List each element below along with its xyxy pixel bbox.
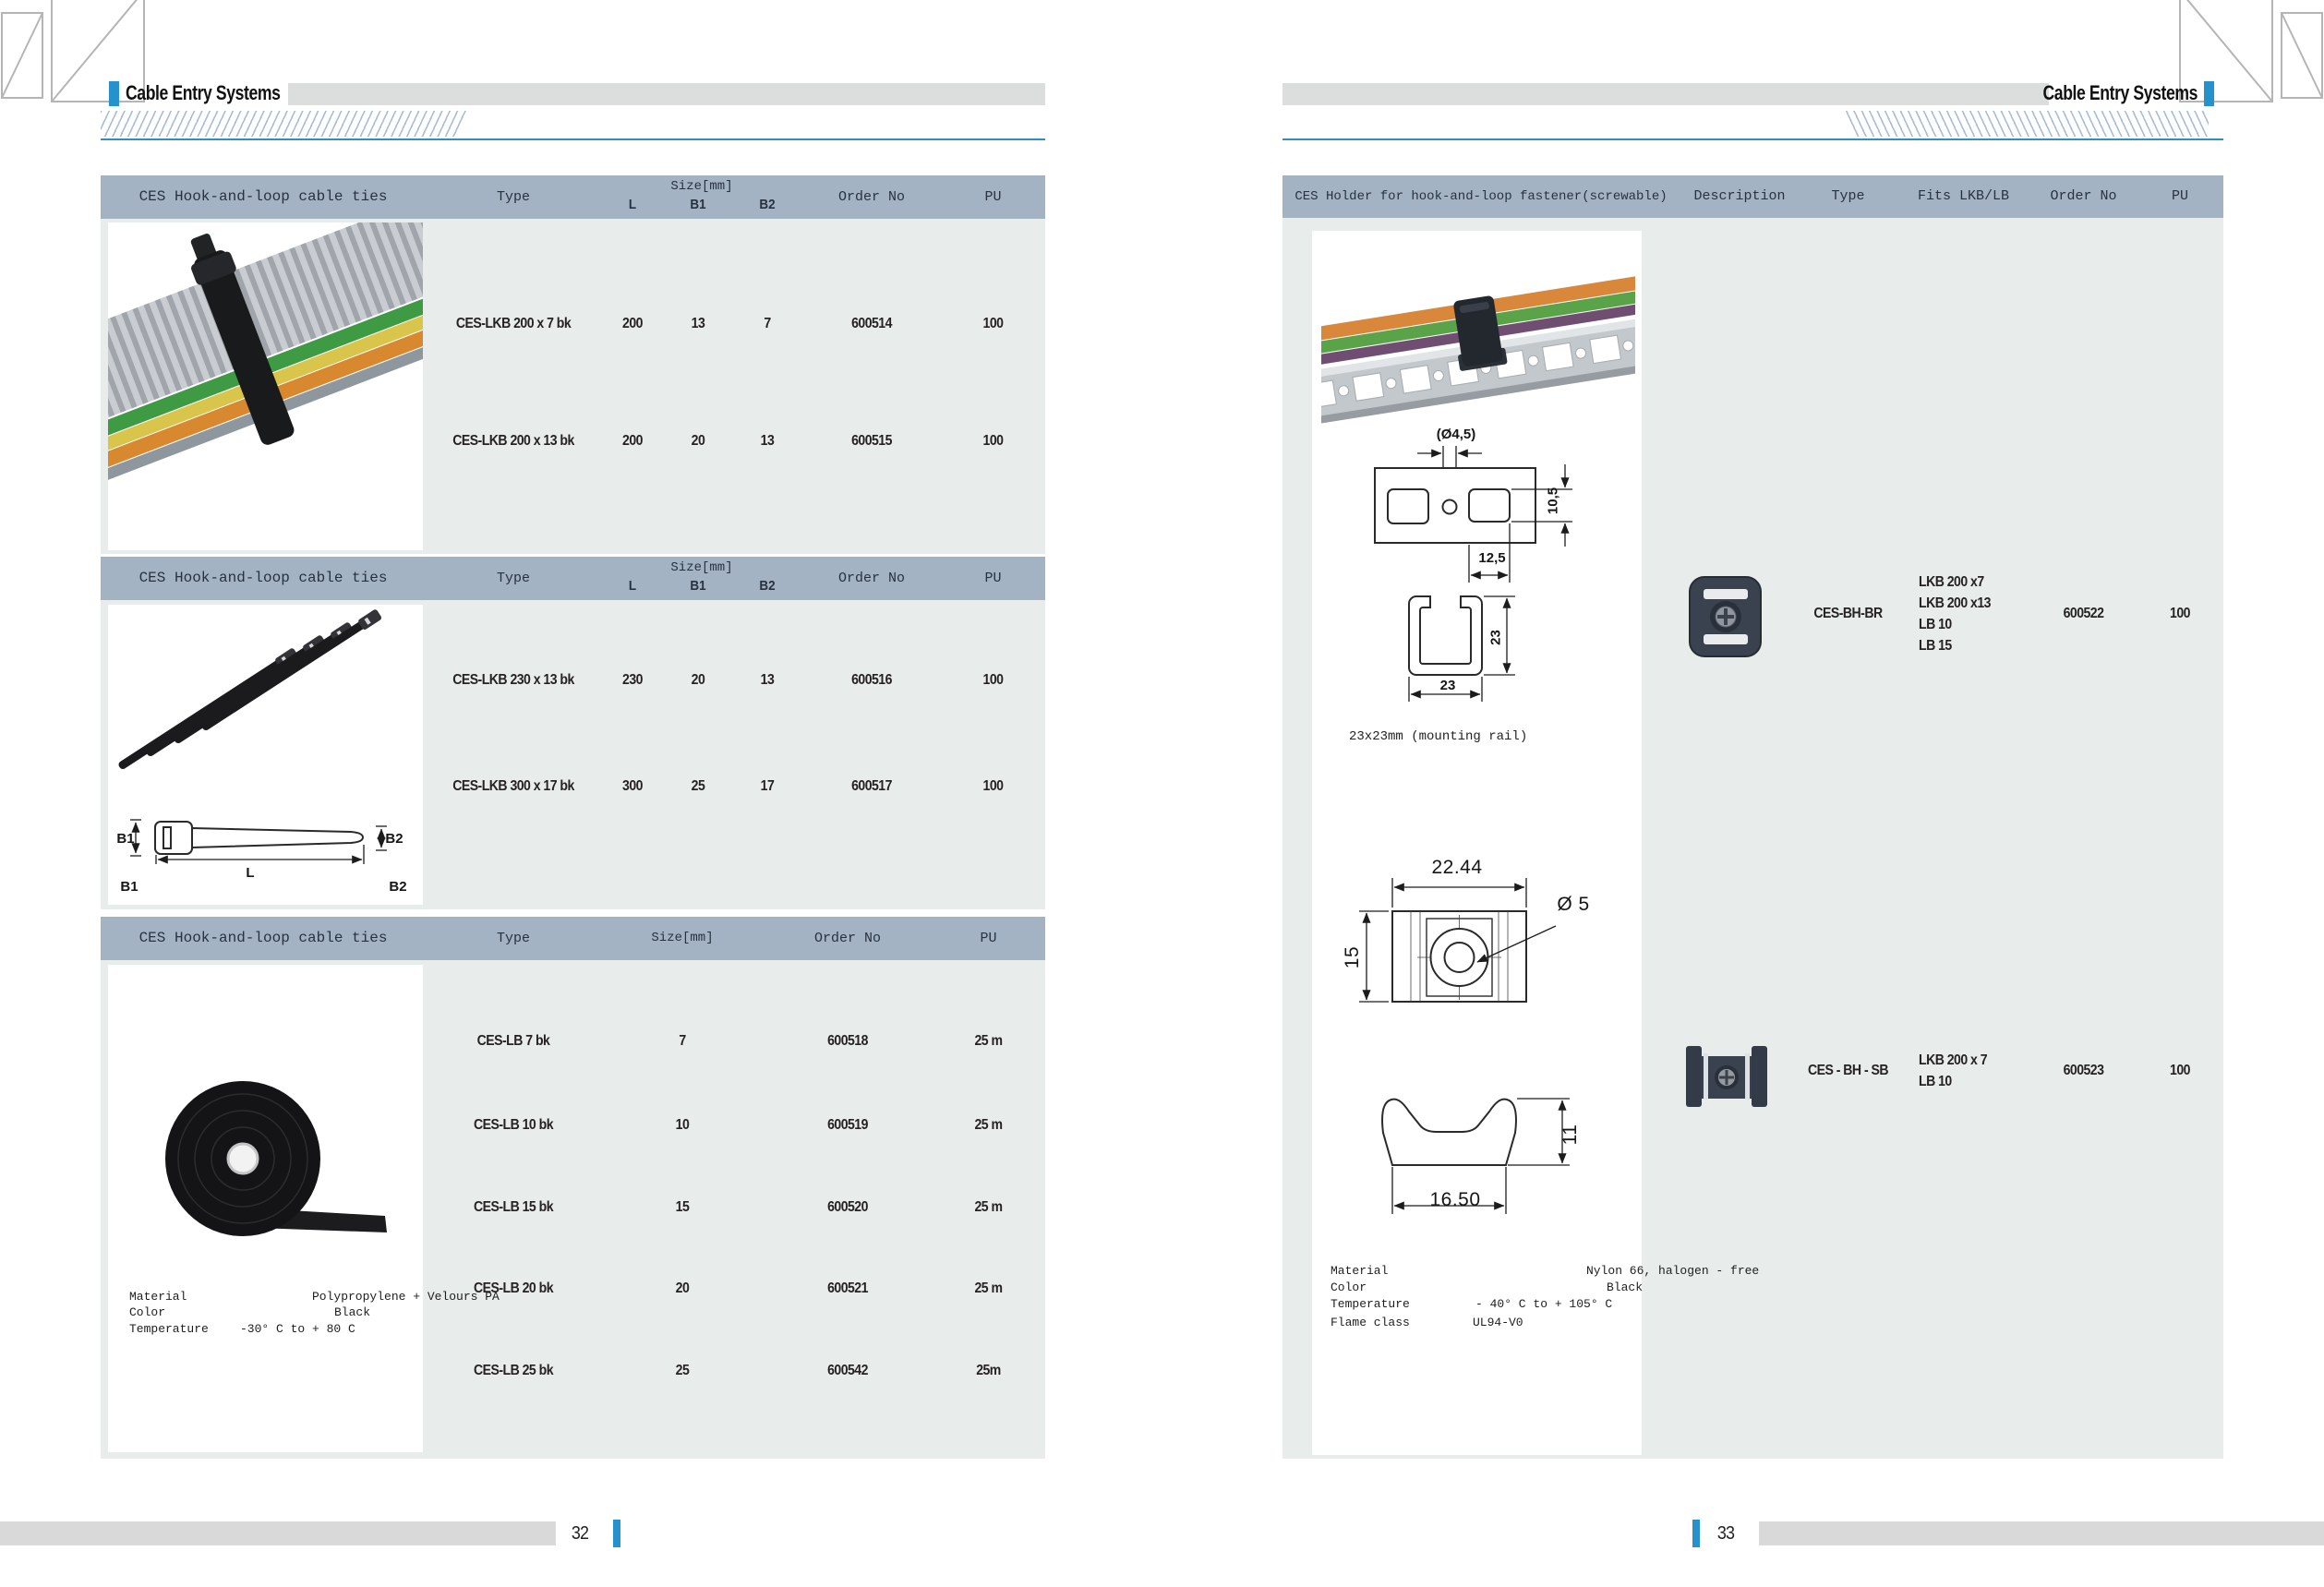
row-size: 15	[611, 1196, 754, 1219]
page-number-right: 33	[1707, 1523, 1744, 1545]
col-header-pu: PU	[2137, 175, 2223, 218]
row-l: 230	[605, 669, 660, 691]
row-type: CES-BH-BR	[1805, 603, 1890, 625]
row-pu: 100	[2142, 1060, 2219, 1082]
row-order: 600542	[774, 1360, 921, 1382]
material-label: Material	[1331, 1263, 1388, 1280]
table-row: CES-LKB 200 x 7 bk 200 13 7 600514 100	[101, 313, 1045, 335]
fits-item: LB 15	[1919, 635, 2032, 656]
row-type: CES-LKB 230 x 13 bk	[436, 669, 590, 691]
row-type: CES-LB 7 bk	[436, 1030, 590, 1052]
col-header-pu: PU	[941, 175, 1045, 219]
product-photo-frame	[108, 222, 423, 550]
temperature-value: -30° C to + 80 C	[240, 1321, 355, 1338]
row-l: 200	[605, 313, 660, 335]
table-body: B1 B2 L B1 B2 L CES-LKB 230 x 13 bk 230 …	[101, 600, 1045, 909]
row-order: 600522	[2037, 603, 2130, 625]
photo-rail-with-cables	[1321, 263, 1635, 425]
dim-label-b1: B1	[113, 831, 138, 847]
row-order: 600519	[774, 1114, 921, 1136]
row-pu: 100	[947, 313, 1039, 335]
dim-holder-hole-dia: Ø 5	[1536, 894, 1610, 916]
table-body: CES-LKB 200 x 7 bk 200 13 7 600514 100 C…	[101, 219, 1045, 554]
table-row: CES-LB 7 bk 7 600518 25 m	[101, 1030, 1045, 1052]
footer-bar-right	[1759, 1521, 2324, 1545]
col-header-type: Type	[426, 175, 601, 219]
row-order: 600516	[811, 669, 933, 691]
dim-base-height: 11	[1559, 1121, 1582, 1148]
row-fits: LKB 200 x7 LKB 200 x13 LB 10 LB 15	[1919, 571, 2048, 656]
row-b2: 7	[737, 313, 799, 335]
row-size: 7	[611, 1030, 754, 1052]
row-size: 20	[611, 1278, 754, 1300]
dim-holder-width: 22.44	[1411, 857, 1503, 879]
dim-holder-height: 15	[1342, 939, 1364, 976]
col-header-b2: B2	[736, 578, 799, 594]
col-header-order: Order No	[802, 175, 941, 219]
right-page-title: Cable Entry Systems	[1887, 81, 2198, 105]
dim-hole-dia: (Ø4,5)	[1415, 427, 1498, 442]
row-b1: 20	[668, 669, 728, 691]
row-b1: 13	[668, 313, 728, 335]
table-body: CES-LB 7 bk 7 600518 25 m CES-LB 10 bk 1…	[101, 960, 1045, 1459]
row-type: CES-LKB 300 x 17 bk	[436, 775, 590, 798]
footer-tick-right	[1692, 1520, 1700, 1547]
left-header-accent-square	[109, 81, 119, 106]
footer-bar-left	[0, 1521, 556, 1545]
tie-outline-drawing	[130, 820, 387, 864]
product-photo-bh-br	[1689, 574, 1763, 659]
fits-item: LB 10	[1919, 614, 2032, 635]
material-spec-block-left: Material Polypropylene + Velours PA Colo…	[129, 1283, 526, 1339]
col-header-type: Type	[426, 917, 601, 960]
row-b1: 25	[668, 775, 728, 798]
temperature-label: Temperature	[129, 1321, 209, 1338]
row-size: 25	[611, 1360, 754, 1382]
color-value: Black	[334, 1304, 370, 1321]
dim-profile-height: 23	[1488, 624, 1504, 652]
col-header-pu: PU	[932, 917, 1045, 960]
row-pu: 25m	[938, 1360, 1038, 1382]
table-row: CES-LKB 230 x 13 bk 230 20 13 600516 100	[101, 669, 1045, 691]
material-value: Polypropylene + Velours PA	[312, 1289, 500, 1305]
col-header-order: Order No	[764, 917, 932, 960]
col-header-l: L	[604, 578, 660, 594]
table-row: CES-LKB 300 x 17 bk 300 25 17 600517 100	[101, 775, 1045, 798]
right-header-hatch	[1842, 111, 2209, 137]
table-title: CES Hook-and-loop cable ties	[101, 917, 426, 960]
product-photo-frame: B1 B2 L	[108, 605, 423, 905]
color-label: Color	[1331, 1280, 1367, 1296]
col-header-pu: PU	[941, 557, 1045, 600]
product-photo-bh-sb	[1686, 1045, 1767, 1108]
table-header-row: CES Hook-and-loop cable ties Type Size[m…	[101, 557, 1045, 600]
material-value: Nylon 66, halogen - free	[1586, 1263, 1759, 1280]
dim-profile-width: 23	[1429, 678, 1466, 693]
row-order: 600518	[774, 1030, 921, 1052]
row-order: 600520	[774, 1196, 921, 1219]
row-b2: 13	[737, 669, 799, 691]
dim-label-b2: B2	[384, 879, 412, 895]
row-type: CES-LKB 200 x 7 bk	[436, 313, 590, 335]
photo-cable-ties-with-diagram	[108, 605, 423, 905]
fits-item: LKB 200 x13	[1919, 593, 2032, 614]
row-type: CES-LB 15 bk	[436, 1196, 590, 1219]
row-order: 600515	[811, 430, 933, 452]
color-label: Color	[129, 1304, 165, 1321]
material-spec-block-right: Material Nylon 66, halogen - free Color …	[1331, 1257, 1774, 1335]
catalog-spread: { "colors":{"accent_blue":"#2591cd","hea…	[0, 0, 2324, 1587]
row-pu: 25 m	[938, 1114, 1038, 1136]
col-header-fits: Fits LKB/LB	[1897, 175, 2030, 218]
col-header-size: Size[mm]	[601, 560, 802, 575]
row-pu: 100	[947, 669, 1039, 691]
row-pu: 25 m	[938, 1278, 1038, 1300]
fits-item: LKB 200 x 7	[1919, 1050, 2032, 1071]
row-b2: 17	[737, 775, 799, 798]
photo-corrugated-tube-with-tie	[108, 222, 423, 550]
col-header-description: Description	[1680, 175, 1800, 218]
row-pu: 100	[947, 430, 1039, 452]
row-order: 600521	[774, 1278, 921, 1300]
row-pu: 100	[2142, 603, 2219, 625]
row-pu: 100	[947, 775, 1039, 798]
col-header-size: Size[mm]	[601, 179, 802, 194]
dim-slot-width: 12,5	[1464, 550, 1520, 566]
dim-label-b1: B1	[116, 879, 142, 895]
left-header-band	[288, 83, 1045, 105]
row-pu: 25 m	[938, 1196, 1038, 1219]
table-header-row: CES Holder for hook-and-loop fastener(sc…	[1282, 175, 2223, 218]
right-header-rule	[1282, 138, 2223, 140]
table-title: CES Holder for hook-and-loop fastener(sc…	[1282, 175, 1680, 218]
table-title: CES Hook-and-loop cable ties	[101, 175, 426, 219]
row-b1: 20	[668, 430, 728, 452]
table-row: CES-LB 10 bk 10 600519 25 m	[101, 1114, 1045, 1136]
table-row: CES-LKB 200 x 13 bk 200 20 13 600515 100	[101, 430, 1045, 452]
row-pu: 25 m	[938, 1030, 1038, 1052]
fits-item: LB 10	[1919, 1071, 2032, 1092]
left-header-hatch	[101, 111, 470, 137]
footer-tick-left	[613, 1520, 620, 1547]
col-header-b2: B2	[736, 197, 799, 212]
table-header-row: CES Hook-and-loop cable ties Type Size[m…	[101, 175, 1045, 219]
dim-label-l: L	[236, 865, 264, 881]
row-b2: 13	[737, 430, 799, 452]
row-type: CES-LB 25 bk	[436, 1360, 590, 1382]
table-header-row: CES Hook-and-loop cable ties Type Size[m…	[101, 917, 1045, 960]
material-label: Material	[129, 1289, 187, 1305]
col-header-b1: B1	[668, 578, 729, 594]
col-header-order: Order No	[2030, 175, 2137, 218]
row-type: CES-LB 10 bk	[436, 1114, 590, 1136]
dim-slot-height: 10,5	[1546, 483, 1561, 520]
row-size: 10	[611, 1114, 754, 1136]
row-order: 600523	[2037, 1060, 2130, 1082]
fits-item: LKB 200 x7	[1919, 571, 2032, 593]
flame-class-label: Flame class	[1331, 1315, 1410, 1331]
dim-label-b2: B2	[380, 831, 408, 847]
row-type: CES - BH - SB	[1805, 1060, 1890, 1082]
row-order: 600514	[811, 313, 933, 335]
table-row: CES-LB 25 bk 25 600542 25m	[101, 1360, 1045, 1382]
col-header-b1: B1	[668, 197, 729, 212]
col-header-type: Type	[1800, 175, 1897, 218]
rail-drawing-caption: 23x23mm (mounting rail)	[1349, 729, 1626, 744]
temperature-value: - 40° C to + 105° C	[1475, 1296, 1612, 1313]
color-value: Black	[1607, 1280, 1643, 1296]
dim-base-width: 16.50	[1409, 1189, 1501, 1211]
left-header-rule	[101, 138, 1045, 140]
row-order: 600517	[811, 775, 933, 798]
row-type: CES-LKB 200 x 13 bk	[436, 430, 590, 452]
temperature-label: Temperature	[1331, 1296, 1410, 1313]
col-header-order: Order No	[802, 557, 941, 600]
left-page-title: Cable Entry Systems	[126, 81, 281, 105]
col-header-type: Type	[426, 557, 601, 600]
table-row: CES-LB 15 bk 15 600520 25 m	[101, 1196, 1045, 1219]
right-header-accent-square	[2204, 81, 2214, 106]
row-fits: LKB 200 x 7 LB 10	[1919, 1050, 2048, 1092]
col-header-size: Size[mm]	[601, 917, 764, 960]
row-l: 200	[605, 430, 660, 452]
flame-class-value: UL94-V0	[1473, 1315, 1523, 1331]
table-title: CES Hook-and-loop cable ties	[101, 557, 426, 600]
page-number-left: 32	[561, 1523, 598, 1545]
col-header-l: L	[604, 197, 660, 212]
row-l: 300	[605, 775, 660, 798]
